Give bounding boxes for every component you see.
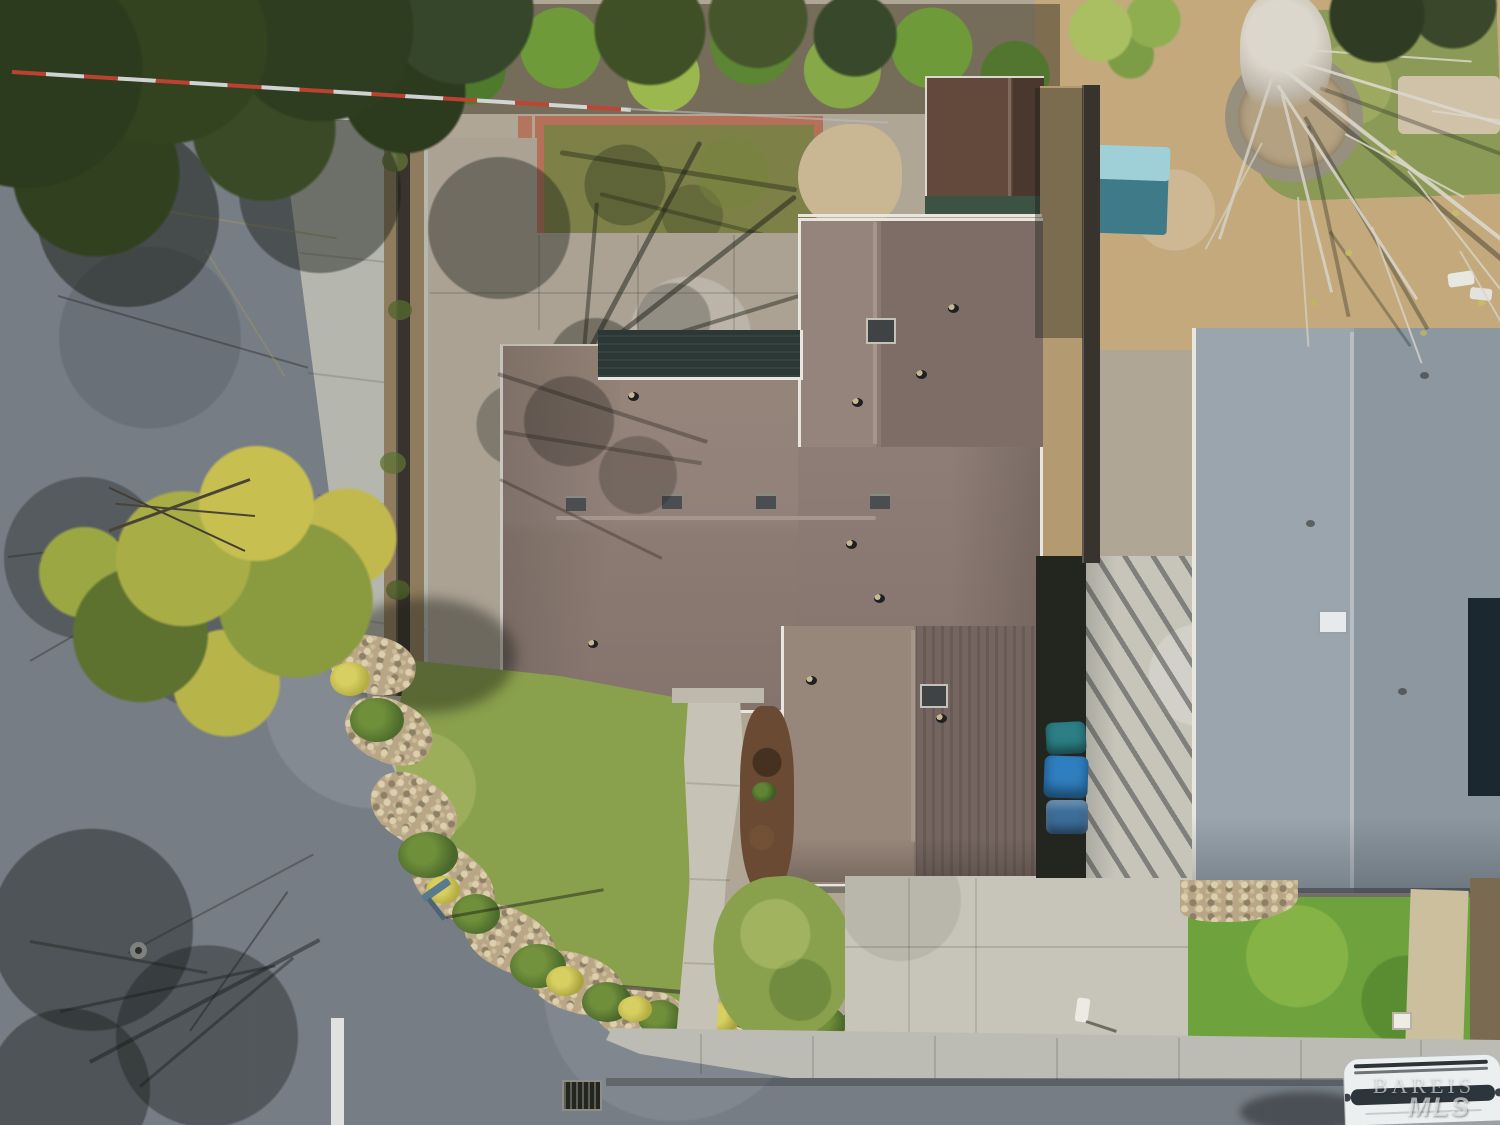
skylight (866, 318, 896, 344)
roof-vent (870, 494, 890, 509)
driveway-joint (908, 878, 910, 1043)
tree-yellow-mid-left (20, 400, 450, 745)
skylight (920, 684, 948, 708)
sidewalk-joint (700, 1034, 702, 1074)
car-roof-rack (1354, 1067, 1488, 1075)
shed-roof (925, 76, 1044, 200)
leaf-tuft (1420, 330, 1427, 336)
mushroom-vent (852, 398, 863, 407)
leaf-tuft (1390, 150, 1397, 156)
white-car (1343, 1053, 1500, 1125)
roof-vent (756, 494, 776, 509)
car-hood-crease (1366, 1109, 1482, 1115)
trash-bin-blue (1043, 755, 1088, 799)
neighbor-skylight (1318, 610, 1348, 634)
car-side-mirror (1495, 1088, 1500, 1096)
mushroom-vent (936, 714, 947, 723)
mushroom-vent (916, 370, 927, 379)
tree-canopy-top-right-corner (1320, 0, 1500, 75)
trash-bin-teal (1045, 721, 1087, 755)
roof-south-hip-shading (783, 838, 1038, 882)
mushroom-vent (806, 676, 817, 685)
leaf-tuft (1345, 250, 1352, 256)
leaf-tuft (1310, 300, 1317, 306)
neighbor-roof-vent (1398, 688, 1407, 695)
neighbor-pavers (1398, 76, 1500, 134)
sidewalk-joint (1178, 1038, 1180, 1080)
neighbor-roof-vent (1420, 372, 1429, 379)
car-side-mirror (1343, 1094, 1351, 1102)
tree-shadow-on-roof (500, 346, 730, 561)
leafy-branch-over-fence (1048, 0, 1198, 85)
mushroom-vent (588, 640, 598, 648)
sidewalk-joint (934, 1036, 936, 1078)
neighbor-roof-vent (1306, 520, 1315, 527)
car-windshield (1351, 1084, 1495, 1105)
roof-ridge-south (911, 630, 915, 842)
car-front-bumper (1346, 1120, 1500, 1125)
mushroom-vent (846, 540, 857, 549)
shed-ridge (1008, 78, 1011, 196)
white-eave-line (798, 214, 1042, 217)
leaf-tuft (1478, 300, 1485, 306)
sidewalk-joint (812, 1036, 814, 1078)
tree-canopy-top-middle (560, 0, 920, 90)
sidewalk-joint (1300, 1040, 1302, 1080)
yellow-shrub (546, 966, 584, 996)
aerial-photo-drone-view: BAREIS MLS (0, 0, 1500, 1125)
mushroom-vent (948, 304, 959, 313)
mushroom-vent (874, 594, 885, 603)
leaf-tuft (1452, 210, 1459, 216)
roof-north-wing (798, 218, 1043, 447)
wood-fence-right (1082, 85, 1100, 563)
sidewalk-joint (1056, 1038, 1058, 1080)
shed-green-gap (925, 196, 1042, 214)
driveway-joint (975, 878, 977, 1043)
mulch-shrub (752, 782, 776, 802)
trash-bin-gray (1046, 800, 1088, 834)
playhouse-roof (1095, 145, 1170, 182)
yellow-shrub (618, 996, 652, 1022)
neighbor-walkway (1405, 889, 1468, 1043)
neighbor-dirt-edge (1470, 878, 1500, 1045)
driveway-joint (845, 946, 1190, 948)
porch-slab (672, 688, 764, 703)
storm-drain-grate (562, 1080, 602, 1111)
utility-box (1392, 1012, 1412, 1030)
neighbor-solar-panel (1468, 598, 1500, 796)
fence-shadow-on-dirt (1035, 88, 1083, 338)
